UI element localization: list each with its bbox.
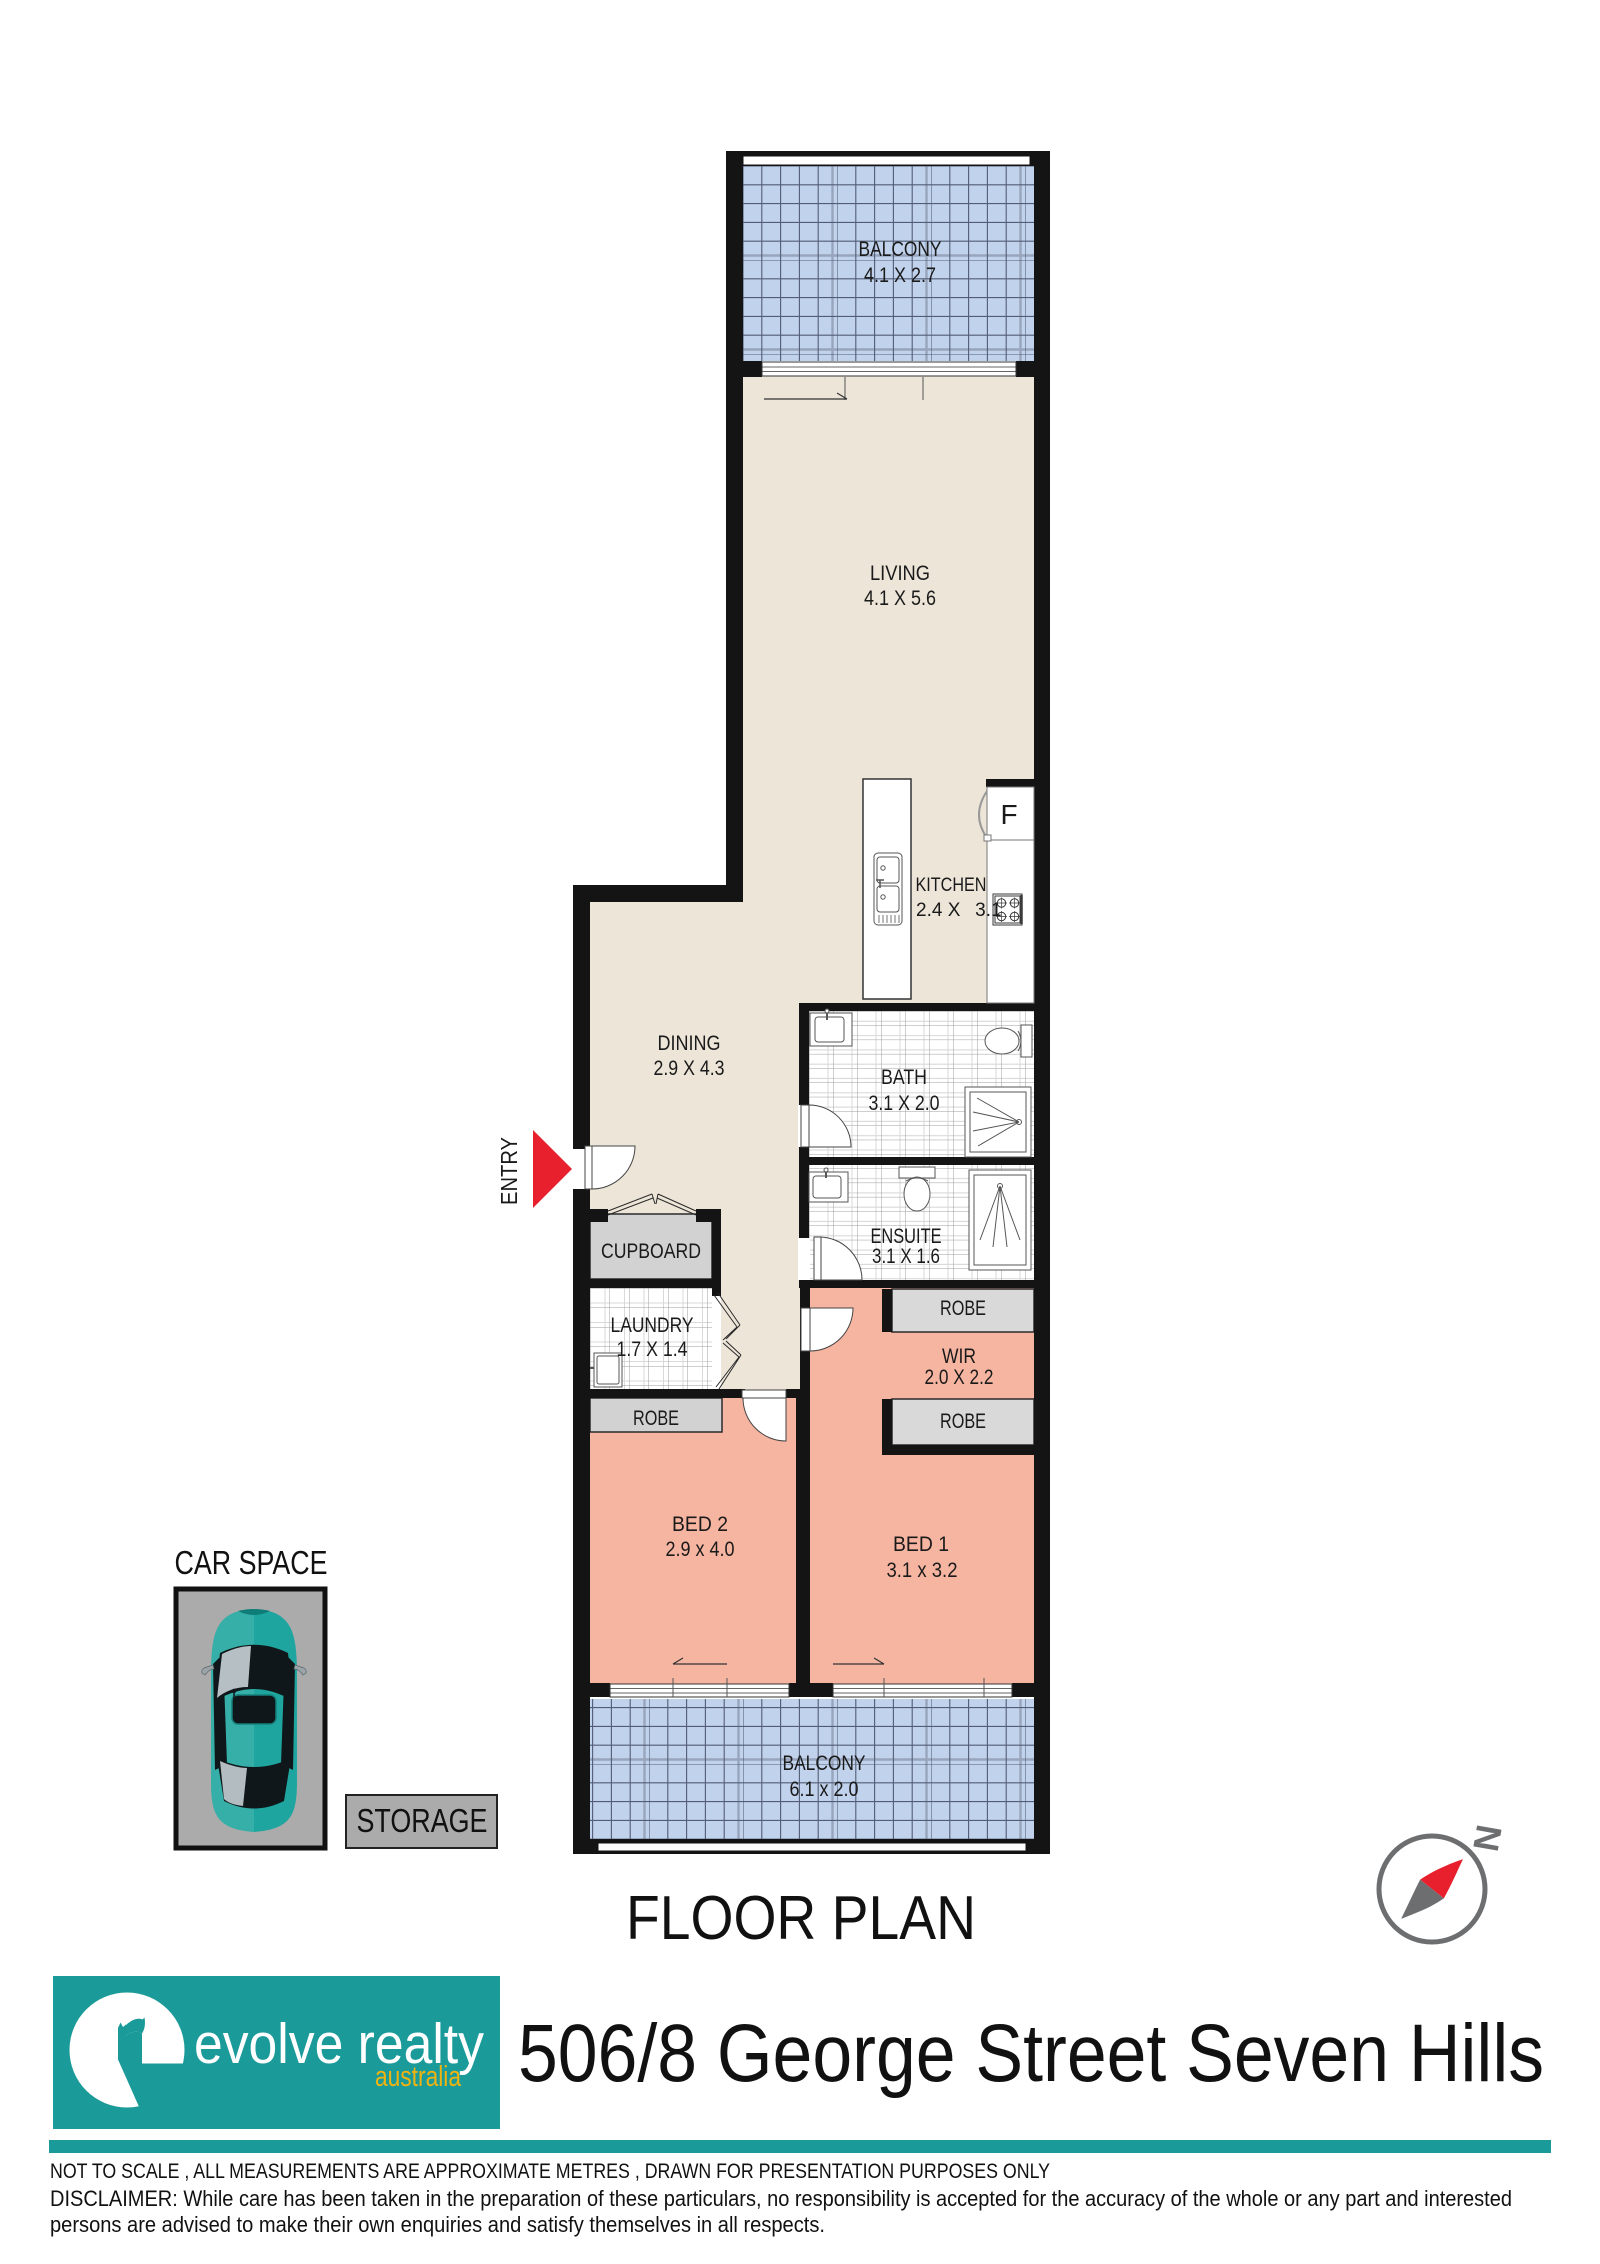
- svg-text:N: N: [1465, 1822, 1510, 1855]
- svg-text:4.1 X 5.6: 4.1 X 5.6: [864, 587, 936, 610]
- svg-text:CAR SPACE: CAR SPACE: [175, 1544, 328, 1581]
- svg-text:ROBE: ROBE: [633, 1407, 679, 1430]
- svg-text:6.1 x 2.0: 6.1 x 2.0: [790, 1778, 859, 1801]
- svg-text:ROBE: ROBE: [940, 1410, 986, 1433]
- svg-text:CUPBOARD: CUPBOARD: [601, 1240, 701, 1263]
- svg-text:persons are advised to make th: persons are advised to make their own en…: [50, 2212, 825, 2237]
- svg-text:STORAGE: STORAGE: [357, 1802, 488, 1839]
- svg-text:FLOOR PLAN: FLOOR PLAN: [626, 1884, 976, 1953]
- svg-text:BALCONY: BALCONY: [783, 1752, 866, 1775]
- svg-text:2.9 X 4.3: 2.9 X 4.3: [654, 1057, 725, 1080]
- svg-text:BED 1: BED 1: [893, 1533, 949, 1556]
- svg-text:ENTRY: ENTRY: [496, 1137, 522, 1205]
- svg-text:australia: australia: [375, 2061, 462, 2093]
- svg-text:F: F: [1000, 799, 1017, 830]
- svg-text:BATH: BATH: [881, 1066, 927, 1089]
- svg-text:DINING: DINING: [658, 1032, 721, 1055]
- svg-text:506/8 George Street Seven Hill: 506/8 George Street Seven Hills: [518, 2008, 1544, 2099]
- svg-text:LIVING: LIVING: [870, 562, 930, 585]
- svg-text:2.4 X 3.1: 2.4 X 3.1: [916, 900, 1002, 921]
- svg-text:KITCHEN: KITCHEN: [916, 875, 987, 896]
- svg-text:3.1 x 3.2: 3.1 x 3.2: [887, 1559, 958, 1582]
- svg-text:2.0 X 2.2: 2.0 X 2.2: [925, 1366, 994, 1389]
- svg-text:3.1 X 2.0: 3.1 X 2.0: [869, 1092, 940, 1115]
- svg-text:2.9 x 4.0: 2.9 x 4.0: [666, 1538, 735, 1561]
- svg-text:BALCONY: BALCONY: [859, 238, 942, 261]
- svg-text:LAUNDRY: LAUNDRY: [611, 1314, 694, 1337]
- svg-text:3.1 X 1.6: 3.1 X 1.6: [872, 1245, 940, 1268]
- svg-text:NOT TO SCALE , ALL MEASUREMENT: NOT TO SCALE , ALL MEASUREMENTS ARE APPR…: [50, 2160, 1050, 2183]
- svg-text:BED 2: BED 2: [672, 1513, 728, 1536]
- svg-text:4.1 X 2.7: 4.1 X 2.7: [864, 264, 936, 287]
- svg-text:DISCLAIMER: While care has be: DISCLAIMER: While care has been taken in…: [50, 2186, 1512, 2211]
- svg-text:1.7 X 1.4: 1.7 X 1.4: [617, 1338, 688, 1361]
- svg-text:ROBE: ROBE: [940, 1297, 986, 1320]
- svg-text:WIR: WIR: [942, 1345, 976, 1368]
